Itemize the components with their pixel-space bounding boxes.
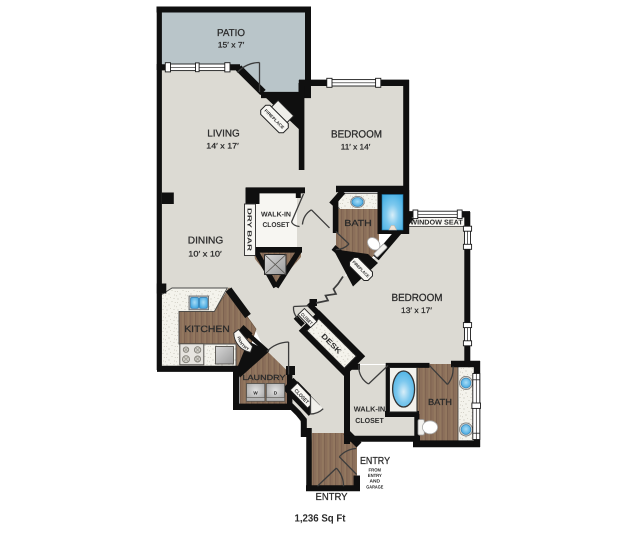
svg-text:BEDROOM: BEDROOM [331, 129, 382, 140]
svg-text:13′ x 17′: 13′ x 17′ [401, 306, 433, 315]
svg-text:LAUNDRY: LAUNDRY [243, 373, 286, 382]
svg-text:LIVING: LIVING [207, 128, 240, 139]
svg-text:WINDOW SEAT: WINDOW SEAT [410, 220, 463, 227]
svg-text:BATH: BATH [344, 218, 372, 228]
svg-text:CLOSET: CLOSET [263, 222, 291, 229]
svg-text:BEDROOM: BEDROOM [392, 293, 443, 304]
svg-text:10′ x 10′: 10′ x 10′ [188, 250, 222, 259]
svg-text:11′ x 14′: 11′ x 14′ [341, 143, 371, 152]
svg-text:DINING: DINING [188, 235, 224, 246]
svg-text:GARAGE: GARAGE [366, 484, 383, 489]
svg-text:ENTRY: ENTRY [316, 492, 348, 503]
svg-text:WALK-IN: WALK-IN [354, 405, 386, 414]
svg-text:W: W [253, 391, 258, 396]
svg-text:AND: AND [370, 479, 381, 484]
svg-text:BATH: BATH [428, 397, 452, 407]
svg-text:15′ x 7′: 15′ x 7′ [218, 40, 245, 49]
svg-text:DRY BAR: DRY BAR [246, 208, 253, 252]
svg-text:PATIO: PATIO [217, 28, 245, 39]
svg-text:ENTRY: ENTRY [360, 456, 390, 467]
svg-text:WALK-IN: WALK-IN [261, 211, 291, 218]
svg-text:KITCHEN: KITCHEN [184, 324, 230, 334]
svg-text:CLOSET: CLOSET [355, 416, 384, 425]
svg-text:1,236 Sq Ft: 1,236 Sq Ft [295, 513, 346, 524]
svg-text:FROM: FROM [369, 467, 382, 472]
svg-text:ENTRY: ENTRY [368, 473, 382, 478]
svg-text:14′ x 17′: 14′ x 17′ [206, 142, 239, 151]
